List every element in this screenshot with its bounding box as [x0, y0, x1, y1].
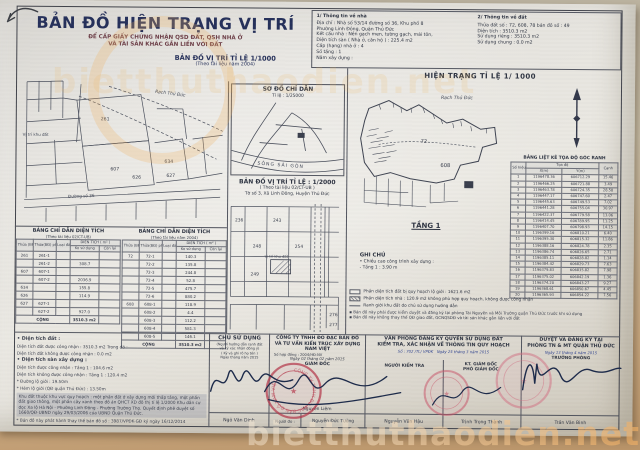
watermark-site-text: bietthuthaodien.net: [120, 414, 640, 450]
info-house: 1/ Thông tin về nhà Địa chỉ : Nhà số 53/…: [312, 11, 473, 68]
index-sketch-map: SÔNG SÀI GÒN: [231, 98, 344, 173]
site-label: Vị trí khu đất: [23, 132, 49, 137]
site-label: Vị trí khu đất: [265, 255, 289, 259]
floor-label: TẦNG 1: [396, 222, 456, 230]
parcel-label: 254: [295, 244, 304, 250]
parcel-label: 276: [329, 312, 338, 318]
legend-items: Phần diện tích đất bị quy hoạch lộ giới …: [349, 288, 617, 310]
parcel-label: 277: [329, 322, 338, 328]
info-land-lines: Thửa đất số : 72, 608, 78 bản đồ số : 49…: [477, 23, 616, 47]
parcel-label: 236: [235, 217, 244, 223]
notes-block: • Diện tích đất :Diện tích đất được công…: [16, 337, 207, 427]
deputy-role2: PHÓ GIÁM ĐỐC: [443, 366, 519, 372]
ghi-chu-lines: • Chiều cao công trình xây dựng :- Tầng …: [360, 259, 510, 271]
coord-col-edge: Cạnh: [599, 163, 618, 176]
approval-role: TRƯỞNG PHÒNG: [522, 355, 620, 361]
survey-map: Rạch Thủ Đức 72 608: [348, 82, 509, 235]
north-arrow-icon: [569, 88, 585, 148]
road-label: Đường số 36: [68, 193, 95, 199]
note-line: • Diện tích đất :: [17, 337, 207, 344]
ghi-chu-block: GHI CHÚ • Chiều cao công trình xây dựng …: [360, 252, 510, 271]
deputy-cell: KT. GIÁM ĐỐC PHÓ GIÁM ĐỐC: [443, 361, 519, 372]
land-info-line: Sử dụng chung : 0.0 m2: [477, 40, 616, 47]
mid-cadastral-map: 236 243 248 254 249 276 277 Vị trí khu đ…: [226, 201, 346, 334]
ghi-chu-line: - Tầng 1 : 3.90 m: [360, 265, 510, 272]
parcel-label: 627: [166, 173, 175, 179]
legend-notes: ▪ Bản đồ này phải được kiểm duyệt và đăn…: [349, 309, 617, 322]
note-line: Diện tích đất được công nhận : 3510.3 m2…: [17, 344, 207, 351]
map2000-note2: Tờ số 3, Xã Linh Đông, Huyện Thủ Đức: [228, 191, 346, 198]
parcel-label: 626: [132, 175, 141, 181]
note-line: Diện tích được công nhận : Tầng 1 : 104.…: [17, 365, 207, 372]
checker-role: NGƯỜI KIỂM TRA: [366, 362, 443, 368]
coord-table: Số hiệu điểm Tọa độ Cạnh X(m) Y(m) 11196…: [509, 162, 618, 300]
note-line: * Đường lộ giới : 19.50m: [17, 379, 207, 386]
owner-date: Ngày tháng năm 2015: [210, 355, 269, 360]
company-signer-name: Nguyễn Liêm: [269, 407, 364, 413]
parcel-label: 243: [273, 218, 282, 224]
photo-of-document: BẢN ĐỒ HIỆN TRẠNG VỊ TRÍ ĐỂ CẤP GIẤY CHỨ…: [0, 0, 640, 450]
building-marker: [464, 181, 473, 188]
info-house-heading: 1/ Thông tin về nhà: [317, 14, 470, 21]
legend-swatch-line: [349, 305, 360, 306]
parcel-label: 608: [440, 163, 450, 169]
note-line: Diện tích không được công nhận : Tầng 1 …: [17, 372, 207, 379]
info-land-heading: 2/ Thông tin về đất: [478, 15, 617, 22]
area-table-left-block: BẢNG CHỈ DẪN DIỆN TÍCH (Theo tài liệu 02…: [15, 228, 121, 325]
office-date: Ngày 25 tháng 3 năm 2015: [437, 349, 489, 354]
area-left-total-label: CỘNG: [16, 316, 70, 324]
coord-col-point: Số hiệu điểm: [511, 162, 526, 175]
office-number: Số : 702 /TL/ VPĐK: [398, 349, 433, 354]
info-land: 2/ Thông tin về đất Thửa đất số : 72, 60…: [473, 12, 620, 69]
legend-block: Phần diện tích đất bị quy hoạch lộ giới …: [349, 288, 617, 321]
note-line: * Hẻm lộ giới (QĐ quận Thủ Đức) : 13.50m: [17, 386, 207, 393]
parcel-label: 249: [251, 271, 260, 277]
site-boundary-polygon: [360, 100, 497, 183]
note-line: Diện tích đất không được công nhận : 0.0…: [17, 351, 207, 358]
info-house-lines: Địa chỉ : Nhà số 53/14 đường số 36, Khu …: [316, 21, 469, 63]
legend-swatch-empty: [349, 289, 360, 294]
company-role: GIÁM ĐỐC: [270, 362, 365, 368]
parcel-label: 72: [421, 139, 428, 145]
area-table-right-block: BẢNG CHỈ DẪN DIỆN TÍCH (Theo tài liệu nă…: [121, 228, 227, 349]
legend-swatch-hatch: [349, 296, 360, 301]
map2000-header: BẢN ĐỒ VỊ TRÍ TỈ LỆ : 1/2000 ( Theo tài …: [228, 178, 346, 198]
area-table-left: Thửa (BĐ) số Thửa(BĐ) phân chiết Loại đấ…: [15, 239, 121, 325]
parcel-label: 248: [253, 244, 262, 250]
area-left-total: 3510.3 m2: [70, 316, 99, 324]
site-marker: [298, 133, 305, 138]
parcel-label: 607: [110, 166, 119, 172]
coord-table-block: BẢNG LIỆT KÊ TỌA ĐỘ GÓC RANH Số hiệu điể…: [509, 156, 618, 300]
note-line: • Diện tích sàn xây dựng :: [17, 358, 207, 365]
coord-table-title: BẢNG LIỆT KÊ TỌA ĐỘ GÓC RANH: [510, 156, 618, 163]
checker-cell: NGƯỜI KIỂM TRA: [365, 359, 443, 414]
watermark-word: bietthuthaodien.net: [52, 62, 476, 102]
